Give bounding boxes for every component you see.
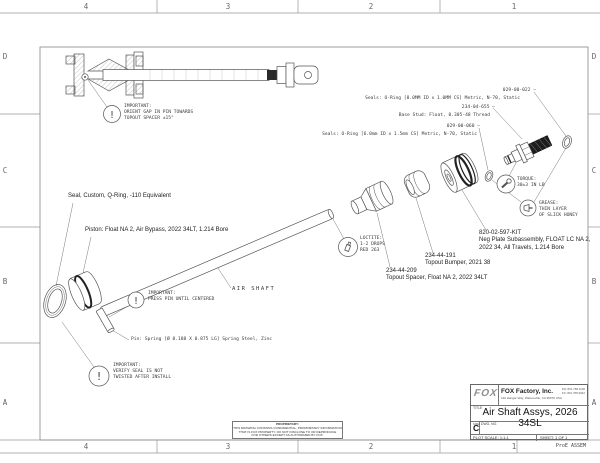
company-phone: PH: 831.768.1100 FX: 831.768.9342 (562, 388, 585, 395)
part-number: 234-44-209 (386, 268, 487, 275)
part-desc: Topout Bumper, 2021 38 (425, 260, 490, 267)
phone-line: FX: 831.768.9342 (562, 392, 585, 396)
topout-bumper (402, 168, 432, 199)
callout-topout-spacer: 234-44-209 Topout Spacer, Float NA 2, 20… (386, 268, 487, 283)
callout-spring-pin: Pin: Spring [Ø 0.188 X 0.875 LG] Spring … (131, 337, 272, 343)
plot-scale: PLOT SCALE: 1:1:1 (473, 435, 509, 440)
company-name: FOX Factory, Inc. (501, 388, 571, 395)
piston (65, 270, 104, 313)
note-line: RED 263 (360, 248, 385, 254)
drawing-sheet: ! ! ! 4 3 2 1 4 3 2 1 D C B A D C B A IM… (0, 0, 600, 463)
callout-neg-plate-kit: 820-02-597-KIT Neg Plate Subassembly, FL… (479, 230, 590, 252)
callout-pn-234-04-655: 234-04-655 — (462, 105, 495, 111)
note-line: 1-2 DROPS (360, 242, 385, 248)
note-line: LOCTITE: (360, 236, 385, 242)
part-number: 820-02-597-KIT (479, 230, 590, 237)
fox-logo: FOX (473, 388, 498, 399)
loctite-balloon (339, 238, 358, 257)
callout-seal-custom: Seal, Custom, Q-Ring, -110 Equivalent (68, 193, 171, 200)
zone-row-a-right: A (589, 398, 599, 407)
callout-base-stud: Base Stud: Float, 0.305-48 Thread (399, 113, 490, 119)
zone-col-1-top: 1 (509, 2, 519, 11)
label-air-shaft: AIR SHAFT (232, 287, 275, 293)
zone-row-b-left: B (0, 277, 10, 286)
zone-col-2-top: 2 (366, 2, 376, 11)
note-line: ORIENT GAP IN PIN TOWARDS (124, 110, 193, 116)
zone-col-2-bottom: 2 (366, 442, 376, 451)
note-line: TWISTED AFTER INSTALL (113, 375, 171, 381)
part-desc: Topout Spacer, Float NA 2, 2022 34LT (386, 275, 487, 282)
note-line: PRESS PIN UNTIL CENTERED (148, 297, 214, 303)
note-line: 30±3 IN LB (517, 183, 545, 189)
callout-piston: Piston: Float NA 2, Air Bypass, 2022 34L… (85, 227, 228, 234)
note-line: VERIFY SEAL IS NOT (113, 369, 171, 375)
proprietary-line: FOR OTHERS EXCEPT AS AUTHORIZED BY FOX. (233, 434, 342, 438)
note-press-pin: IMPORTANT: PRESS PIN UNTIL CENTERED (148, 291, 214, 303)
exclamation-icon: ! (96, 370, 103, 383)
exclamation-icon: ! (133, 296, 139, 307)
note-line: TOPOUT SPACER ±15° (124, 116, 193, 122)
callout-seals-8mm: Seals: O-Ring [8.0MM ID x 1.0MM CS] Metr… (365, 96, 520, 102)
zone-col-4-top: 4 (81, 2, 91, 11)
zone-col-1-bottom: 1 (509, 442, 519, 451)
oring-022 (561, 134, 573, 149)
zone-row-d-left: D (0, 52, 10, 61)
note-grease: GREASE: THIN LAYER OF SLICK HONEY (539, 201, 578, 218)
note-torque: TORQUE: 30±3 IN LB (517, 177, 545, 189)
zone-col-3-top: 3 (223, 2, 233, 11)
zone-col-4-bottom: 4 (81, 442, 91, 451)
neg-plate-subassembly (438, 151, 482, 194)
callout-pn-029-00-060: 029-00-060 — (447, 124, 480, 130)
seal-oring (40, 282, 70, 321)
size-value: C (473, 423, 479, 433)
part-desc: Neg Plate Subassembly, FLOAT LC NA 2, (479, 237, 590, 244)
dwg-no-label: DWG. NO. (481, 422, 497, 426)
proprietary-note: PROPRIETARY: THIS DRAWING CONTAINS CONFI… (232, 421, 343, 439)
note-verify-seal: IMPORTANT: VERIFY SEAL IS NOT TWISTED AF… (113, 363, 171, 380)
zone-row-c-right: C (589, 166, 599, 175)
part-number: 234-44-191 (425, 253, 490, 260)
zone-row-a-left: A (0, 398, 10, 407)
exclamation-icon: ! (109, 110, 115, 121)
proe-footer: ProE ASSEM (556, 443, 586, 449)
title-block: FOX FOX Factory, Inc. 130 Hangar Way, Wa… (470, 384, 588, 440)
topout-spacer (347, 180, 395, 220)
base-stud (501, 132, 554, 170)
sheet-number: SHEET: 1 OF 1 (540, 435, 567, 440)
company-address: 130 Hangar Way, Watsonville, CA 95076 US… (501, 396, 562, 400)
zone-col-3-bottom: 3 (223, 442, 233, 451)
torque-balloon (497, 175, 515, 193)
callout-pn-029-00-022: 029-00-022 — (503, 88, 536, 94)
note-orient-gap: IMPORTANT: ORIENT GAP IN PIN TOWARDS TOP… (124, 104, 193, 121)
callout-seals-6mm: Seals: O-Ring [6.0mm ID x 1.5mm CS] Metr… (322, 132, 477, 138)
important-press-pin-balloon: ! (128, 292, 144, 308)
callout-topout-bumper: 234-44-191 Topout Bumper, 2021 38 (425, 253, 490, 268)
zone-row-b-right: B (589, 277, 599, 286)
zone-row-c-left: C (0, 166, 10, 175)
important-orient-balloon: ! (104, 106, 121, 123)
assembled-view (66, 52, 318, 98)
note-loctite: LOCTITE: 1-2 DROPS RED 263 (360, 236, 385, 253)
grease-balloon (520, 200, 536, 216)
zone-row-d-right: D (589, 52, 599, 61)
part-desc: 2022 34, All Travels, 1.214 Bore (479, 245, 590, 252)
note-line: OF SLICK HONEY (539, 213, 578, 219)
important-verify-seal-balloon: ! (89, 366, 109, 386)
